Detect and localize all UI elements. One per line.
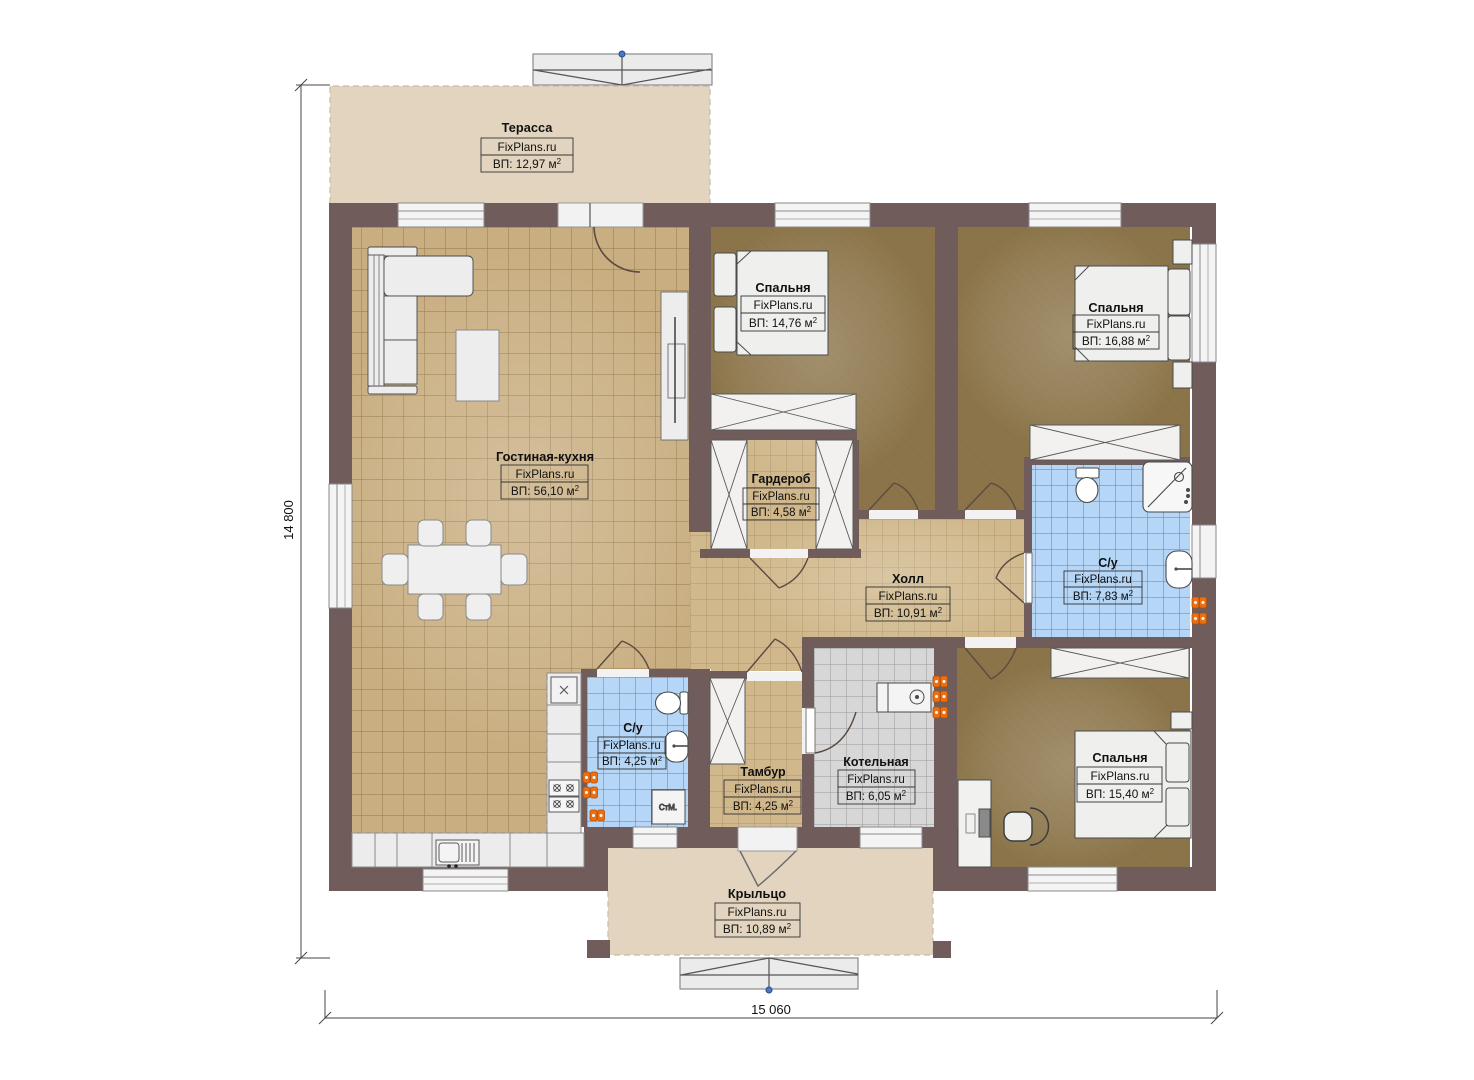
svg-text:Терасса: Терасса <box>502 120 554 135</box>
svg-text:Крыльцо: Крыльцо <box>728 886 786 901</box>
svg-text:FixPlans.ru: FixPlans.ru <box>1090 769 1149 783</box>
svg-text:ВП: 4,25 м2: ВП: 4,25 м2 <box>733 799 794 813</box>
svg-text:15 060: 15 060 <box>751 1002 791 1017</box>
svg-text:FixPlans.ru: FixPlans.ru <box>847 774 905 786</box>
svg-text:Котельная: Котельная <box>843 755 908 769</box>
svg-text:ВП: 14,76 м2: ВП: 14,76 м2 <box>749 316 818 330</box>
svg-text:FixPlans.ru: FixPlans.ru <box>515 467 574 481</box>
svg-text:ВП: 10,91 м2: ВП: 10,91 м2 <box>874 606 943 620</box>
svg-text:FixPlans.ru: FixPlans.ru <box>497 140 556 154</box>
svg-text:ВП: 10,89 м2: ВП: 10,89 м2 <box>723 922 792 936</box>
svg-text:ВП: 4,25 м2: ВП: 4,25 м2 <box>602 754 662 768</box>
svg-text:Холл: Холл <box>892 571 924 586</box>
svg-text:СтМ.: СтМ. <box>659 803 677 812</box>
svg-text:Спальня: Спальня <box>755 280 810 295</box>
svg-text:Спальня: Спальня <box>1088 300 1143 315</box>
svg-text:ВП: 16,88 м2: ВП: 16,88 м2 <box>1082 334 1151 348</box>
svg-text:ВП: 6,05 м2: ВП: 6,05 м2 <box>846 789 907 803</box>
svg-text:ВП: 12,97 м2: ВП: 12,97 м2 <box>493 157 562 171</box>
svg-text:Гардероб: Гардероб <box>751 472 810 486</box>
svg-text:ВП: 56,10 м2: ВП: 56,10 м2 <box>511 484 580 498</box>
svg-text:С/у: С/у <box>1098 556 1118 570</box>
svg-text:FixPlans.ru: FixPlans.ru <box>734 784 792 796</box>
svg-text:14 800: 14 800 <box>281 500 296 540</box>
svg-text:Спальня: Спальня <box>1092 750 1147 765</box>
svg-text:FixPlans.ru: FixPlans.ru <box>752 491 810 503</box>
svg-text:Гостиная-кухня: Гостиная-кухня <box>496 449 594 464</box>
svg-text:FixPlans.ru: FixPlans.ru <box>753 298 812 312</box>
svg-text:ВП: 7,83 м2: ВП: 7,83 м2 <box>1073 589 1134 603</box>
svg-text:ВП: 4,58 м2: ВП: 4,58 м2 <box>751 505 812 519</box>
svg-text:ВП: 15,40 м2: ВП: 15,40 м2 <box>1086 787 1155 801</box>
svg-text:FixPlans.ru: FixPlans.ru <box>727 905 786 919</box>
svg-text:FixPlans.ru: FixPlans.ru <box>1074 574 1132 586</box>
svg-text:Тамбур: Тамбур <box>740 765 786 779</box>
svg-text:С/у: С/у <box>623 721 643 735</box>
svg-text:FixPlans.ru: FixPlans.ru <box>1086 317 1145 331</box>
svg-text:FixPlans.ru: FixPlans.ru <box>603 740 661 752</box>
svg-text:FixPlans.ru: FixPlans.ru <box>878 589 937 603</box>
